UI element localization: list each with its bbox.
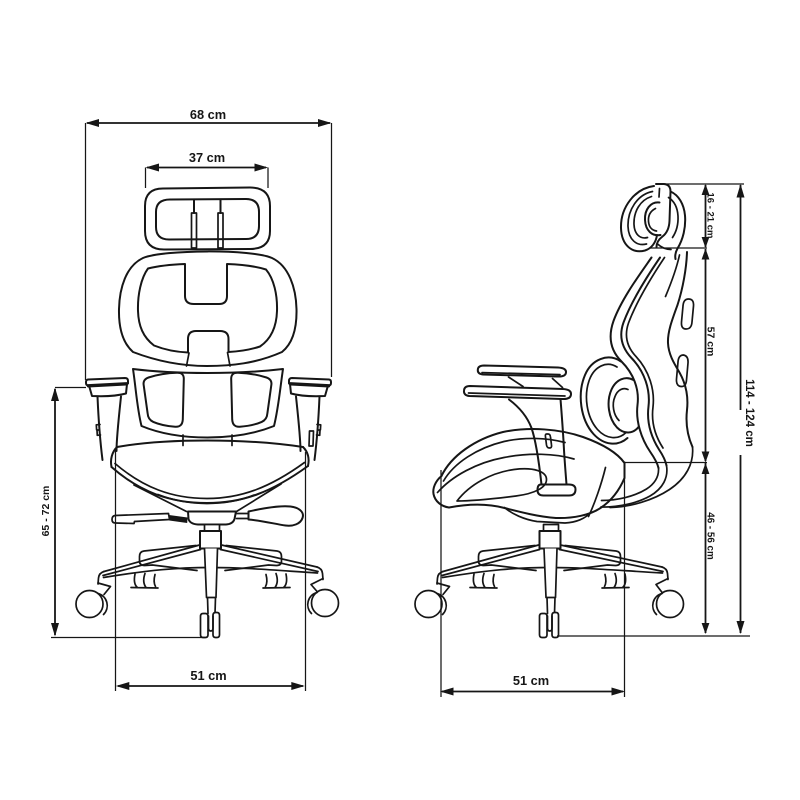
svg-text:16 - 21 cm: 16 - 21 cm (705, 193, 716, 239)
svg-text:51 cm: 51 cm (190, 668, 226, 683)
svg-text:46 - 56 cm: 46 - 56 cm (705, 512, 716, 560)
svg-text:51 cm: 51 cm (513, 673, 549, 688)
svg-text:114 - 124 cm: 114 - 124 cm (743, 379, 755, 447)
svg-text:37 cm: 37 cm (189, 150, 225, 165)
svg-text:65 - 72 cm: 65 - 72 cm (40, 486, 52, 537)
svg-text:68 cm: 68 cm (190, 107, 226, 122)
svg-text:57 cm: 57 cm (705, 327, 717, 357)
